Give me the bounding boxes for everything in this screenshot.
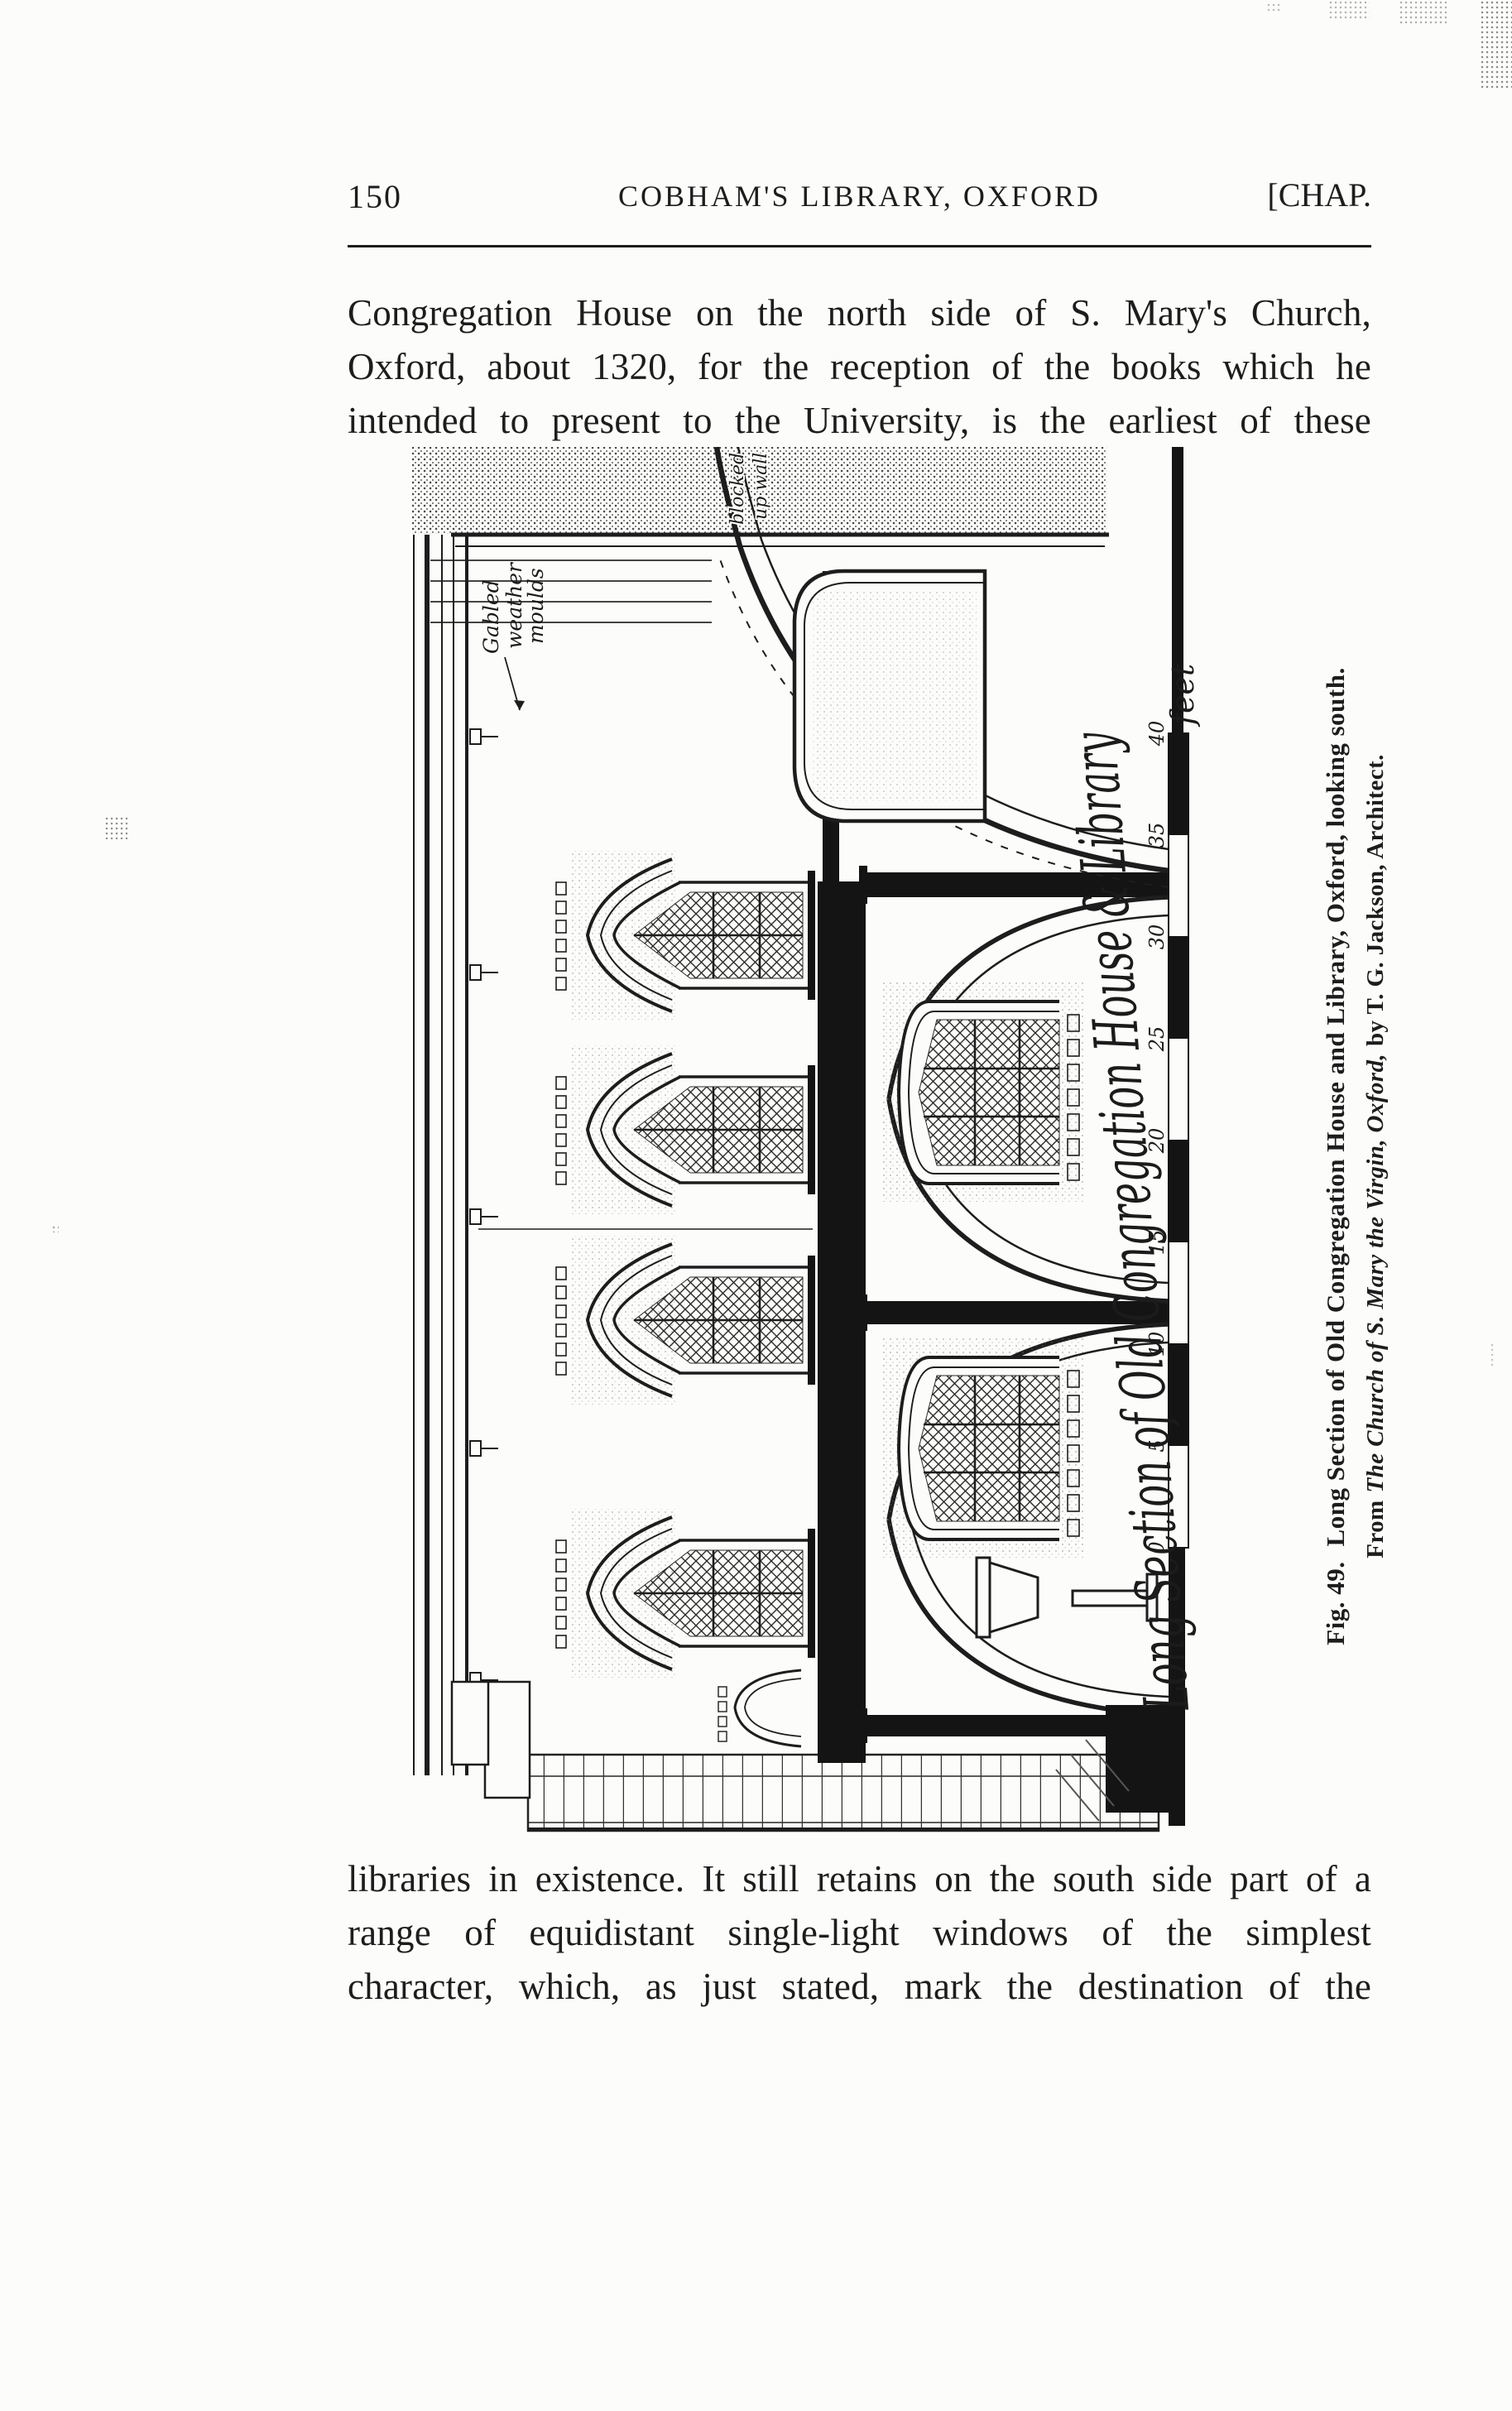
figure-49: 0 5 10 15 20 25 30 35 40 feet Long Secti… [406, 447, 1221, 1846]
scale-tick: 30 [1145, 925, 1169, 950]
svg-text:up wall: up wall [751, 453, 771, 520]
roof-lines [414, 535, 467, 1775]
svg-text:blocked: blocked [727, 453, 748, 525]
west-wall [528, 1755, 1159, 1831]
svg-text:weather: weather [502, 561, 526, 649]
body-paragraph-top: Congregation House on the north side of … [348, 286, 1371, 448]
svg-text:moulds: moulds [524, 568, 548, 644]
caption-source-prefix: From [1362, 1500, 1389, 1558]
caption-line-2: FromThe Church of S. Mary the Virgin, Ox… [1362, 581, 1390, 1731]
caption-line-1: Fig. 49.Long Section of Old Congregation… [1321, 581, 1351, 1731]
scan-smudge [1490, 1342, 1495, 1367]
annotation-gabled-weather-moulds: Gabled weather moulds [479, 561, 548, 710]
eaves-corbels [470, 729, 498, 1688]
caption-source-author: by T. G. Jackson, Architect. [1362, 754, 1389, 1046]
floor-band [818, 881, 866, 1763]
svg-text:Gabled: Gabled [479, 579, 503, 654]
scale-unit-label: feet [1164, 663, 1201, 728]
chapter-marker: [CHAP. [1267, 175, 1371, 214]
drawing-geometry: 0 5 10 15 20 25 30 35 40 feet Long Secti… [412, 447, 1203, 1831]
scale-tick: 35 [1145, 823, 1169, 848]
section-drawing: 0 5 10 15 20 25 30 35 40 feet Long Secti… [406, 447, 1221, 1846]
scan-smudge [104, 816, 127, 839]
book-page: 150 COBHAM'S LIBRARY, OXFORD [CHAP. Cong… [0, 0, 1512, 2411]
scan-smudge [1266, 2, 1281, 13]
figure-label: Fig. 49. [1321, 1561, 1350, 1645]
figure-caption: Fig. 49.Long Section of Old Congregation… [1321, 581, 1407, 1731]
scan-smudge [1480, 0, 1512, 89]
body-paragraph-bottom: libraries in existence. It still retains… [348, 1852, 1371, 2014]
scan-smudge [51, 1225, 59, 1232]
running-head: 150 COBHAM'S LIBRARY, OXFORD [CHAP. [348, 170, 1371, 220]
running-head-title: COBHAM'S LIBRARY, OXFORD [348, 179, 1371, 214]
scan-smudge [1399, 0, 1447, 25]
caption-text: Long Section of Old Congregation House a… [1321, 667, 1350, 1546]
head-rule [348, 245, 1371, 247]
caption-source-title: The Church of S. Mary the Virgin, Oxford… [1362, 1054, 1389, 1492]
scan-smudge [1328, 0, 1370, 20]
